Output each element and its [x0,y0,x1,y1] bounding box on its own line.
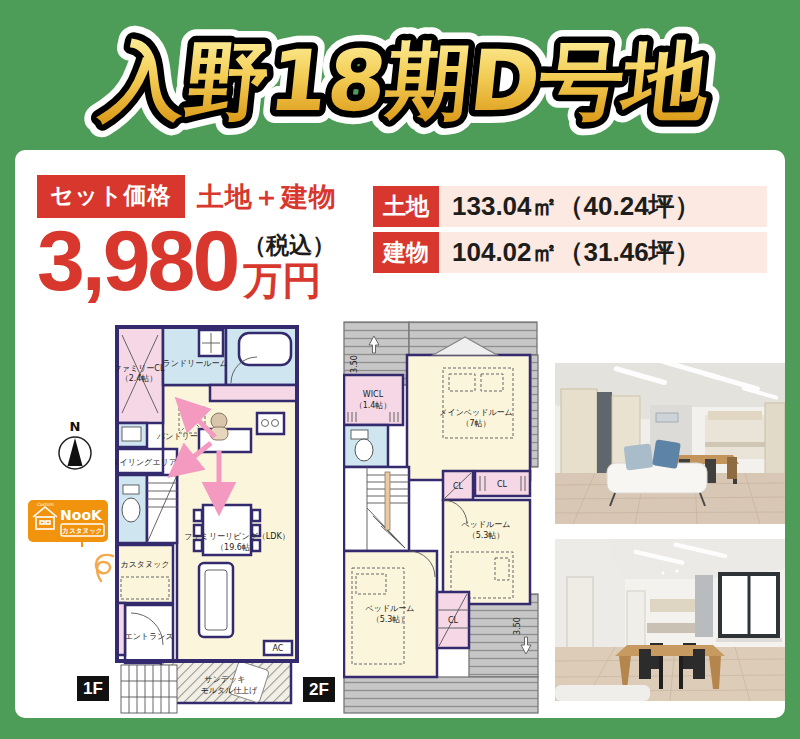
window-photo2 [716,572,782,642]
label-family-cl: ファミリーCL [115,364,165,373]
hall-2f [344,467,409,551]
label-bedroom-east: ベッドルーム [462,520,511,529]
photo-living-room [555,363,785,524]
label-main-bedroom-size: （7帖） [461,419,490,428]
price-block: セット価格 土地＋建物 3,980 （税込） 万円 [37,175,367,302]
dim-top: 3.50 [350,355,359,373]
label-bedroom-west-size: （5.3帖） [372,615,409,624]
compass: N [53,418,97,474]
title-text: 入野18期D号地 [94,32,714,130]
photo-dining-room [555,539,785,701]
room-custom-nook [117,545,173,603]
area-label-building: 建物 [373,232,439,273]
label-sundeck-note: モルタル仕上げ [201,686,259,695]
label-pantry: パントリー [156,432,198,441]
compass-n-label: N [70,419,81,434]
label-living-size: （19.6帖） [216,543,258,552]
room-main-bedroom [407,355,530,480]
label-styling: スタイリングエリア [115,458,177,467]
logo-custom-text: Custom [36,502,54,507]
label-ac: AC [273,644,284,653]
label-nook: カスタヌック [120,560,169,569]
kitchen-counter-strip [210,385,297,401]
logo-name: NooK [60,507,103,523]
stair-post [385,472,390,530]
stove-icon [257,413,284,434]
area-label-land: 土地 [373,186,439,227]
nook-logo: Custom NooK カスタヌック [28,500,110,548]
decorative-squiggle-icon [89,548,117,588]
area-info: 土地 133.04㎡（40.24坪） 建物 104.02㎡（31.46坪） [373,186,767,278]
logo-subtitle: カスタヌック [62,527,103,535]
area-row-building: 建物 104.02㎡（31.46坪） [373,232,767,273]
price-amount: 3,980 [37,220,237,302]
label-wicl-size: （1.4帖） [355,401,392,410]
label-cl-c: CL [448,616,459,625]
label-living: ファミリーリビング（LDK） [184,532,289,541]
area-value-land: 133.04㎡（40.24坪） [439,186,701,227]
floor-plan-2f: 3.50 3.50 WICL （1.4帖） メインベッドルーム （7帖） CL … [343,320,539,715]
label-sundeck: サンデッキ [205,675,246,684]
toilet-icon [122,498,140,522]
content-card: セット価格 土地＋建物 3,980 （税込） 万円 土地 133.04㎡（40.… [15,150,785,718]
floor-tag-2f: 2F [303,677,335,702]
room-bedroom-west [344,551,437,677]
area-row-land: 土地 133.04㎡（40.24坪） [373,186,767,227]
property-flyer: 入野18期D号地 入野18期D号地 セット価格 土地＋建物 3,980 （税込）… [0,0,800,739]
price-unit: 万円 [243,261,321,302]
label-family-cl-size: （2.4帖） [121,374,158,383]
sofa-back-photo2 [555,685,650,701]
label-bedroom-west: ベッドルーム [366,604,415,613]
toilet-2f-icon [355,439,373,461]
sofa-icon [199,563,233,637]
exterior-steps [121,665,177,713]
price-subtitle: 土地＋建物 [197,179,337,215]
label-wicl: WICL [363,390,384,399]
label-cl-b: CL [497,480,508,489]
dim-bottom: 3.50 [513,617,522,635]
floor-tag-1f: 1F [77,676,109,701]
area-value-building: 104.02㎡（31.46坪） [439,232,701,273]
roof-bottom-right [469,594,538,677]
floor-plan-1f: ファミリーCL （2.4帖） ランドリールーム パントリー スタイリングエリア … [115,325,300,717]
page-title: 入野18期D号地 入野18期D号地 [0,12,800,147]
label-bedroom-east-size: （5.3帖） [468,531,505,540]
label-entrance: エントランス [124,632,173,641]
label-laundry: ランドリールーム [162,359,227,368]
bathtub-icon [239,333,291,365]
label-cl-a: CL [453,482,464,491]
label-main-bedroom: メインベッドルーム [439,408,513,417]
price-tax-note: （税込） [243,230,335,261]
roof-bottom-band [344,677,538,713]
roof-right-strip [531,355,538,467]
logo-tail [81,542,83,547]
